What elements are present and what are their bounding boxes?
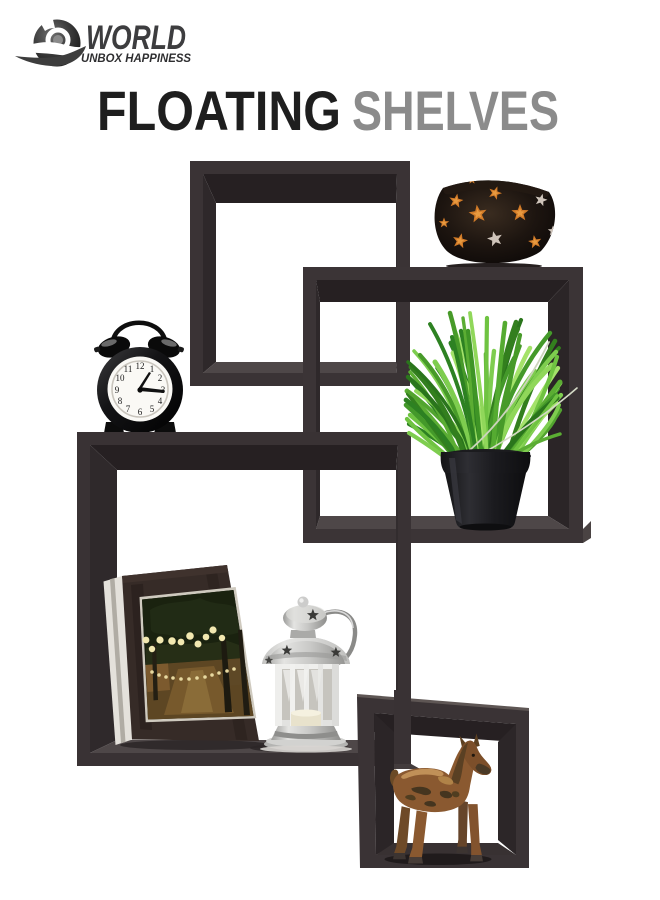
svg-text:SHELVES: SHELVES — [352, 79, 559, 142]
svg-text:FLOATING: FLOATING — [97, 79, 341, 142]
svg-text:12: 12 — [136, 361, 145, 371]
svg-text:9: 9 — [115, 385, 120, 395]
svg-text:5: 5 — [150, 404, 155, 414]
svg-text:6: 6 — [138, 407, 143, 417]
svg-text:10: 10 — [116, 373, 126, 383]
svg-text:8: 8 — [118, 396, 123, 406]
svg-text:11: 11 — [124, 364, 133, 374]
svg-text:1: 1 — [150, 364, 155, 374]
svg-text:WORLD: WORLD — [86, 19, 186, 57]
svg-text:UNBOX HAPPINESS: UNBOX HAPPINESS — [81, 53, 191, 65]
svg-text:7: 7 — [126, 404, 131, 414]
svg-text:4: 4 — [158, 396, 163, 406]
svg-text:2: 2 — [158, 373, 163, 383]
